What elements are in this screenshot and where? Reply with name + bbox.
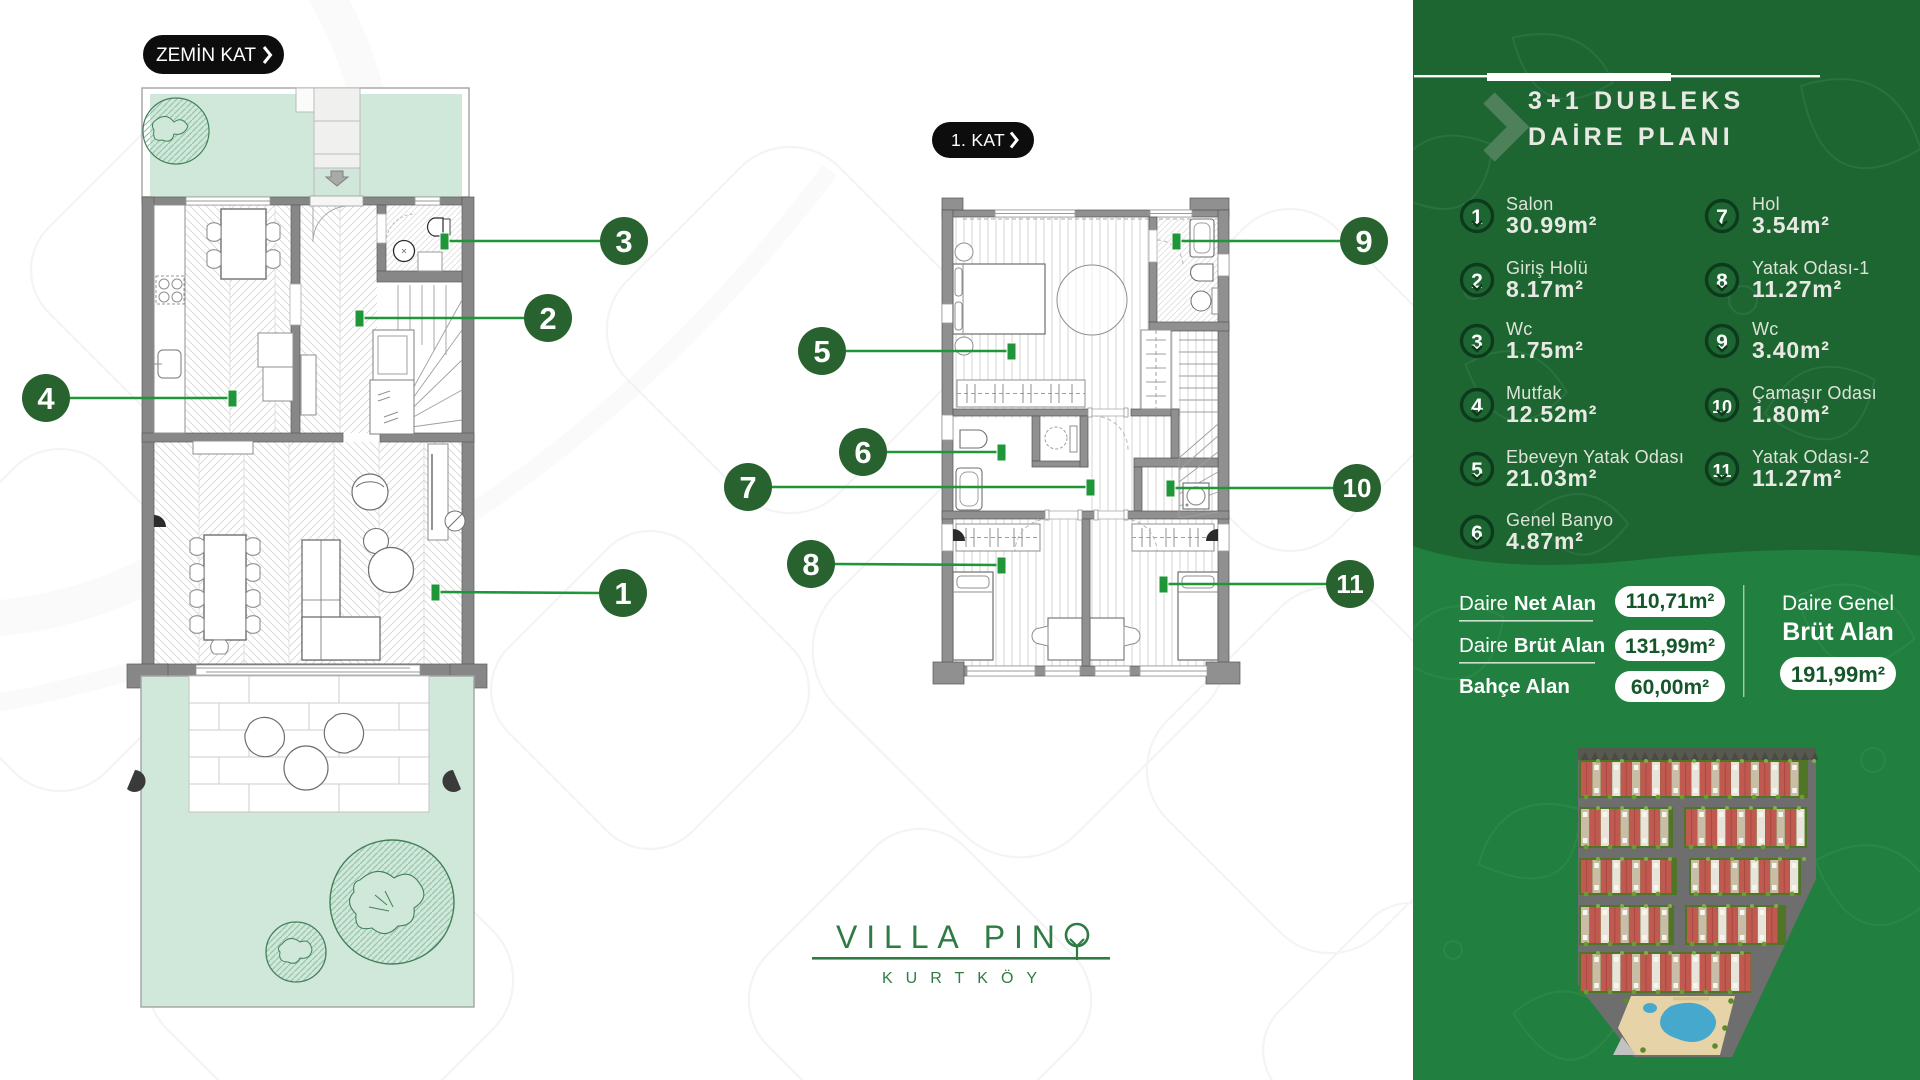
svg-text:9: 9 bbox=[1355, 224, 1372, 259]
svg-text:4: 4 bbox=[37, 381, 55, 416]
svg-text:10: 10 bbox=[1343, 473, 1372, 503]
svg-text:131,99m²: 131,99m² bbox=[1625, 635, 1715, 658]
svg-text:60,00m²: 60,00m² bbox=[1631, 676, 1709, 699]
svg-text:1. KAT: 1. KAT bbox=[951, 130, 1005, 150]
svg-text:5: 5 bbox=[813, 334, 830, 369]
svg-text:Brüt Alan: Brüt Alan bbox=[1782, 618, 1894, 646]
svg-text:Bahçe Alan: Bahçe Alan bbox=[1459, 675, 1570, 698]
svg-text:Daire Genel: Daire Genel bbox=[1782, 592, 1894, 615]
svg-text:8: 8 bbox=[802, 547, 819, 582]
svg-text:VILLA PIN: VILLA PIN bbox=[836, 919, 1064, 955]
svg-text:2: 2 bbox=[539, 301, 556, 336]
svg-text:3: 3 bbox=[615, 224, 632, 259]
svg-text:ZEMİN KAT: ZEMİN KAT bbox=[156, 45, 256, 66]
svg-text:Daire Brüt Alan: Daire Brüt Alan bbox=[1459, 634, 1605, 657]
svg-text:6: 6 bbox=[854, 435, 871, 470]
svg-text:KURTKÖY: KURTKÖY bbox=[882, 969, 1050, 987]
svg-text:7: 7 bbox=[739, 470, 756, 505]
svg-text:110,71m²: 110,71m² bbox=[1626, 590, 1715, 613]
svg-text:1: 1 bbox=[614, 576, 631, 611]
svg-text:11: 11 bbox=[1336, 569, 1364, 599]
svg-text:191,99m²: 191,99m² bbox=[1791, 662, 1885, 687]
svg-text:Daire Net Alan: Daire Net Alan bbox=[1459, 592, 1596, 615]
